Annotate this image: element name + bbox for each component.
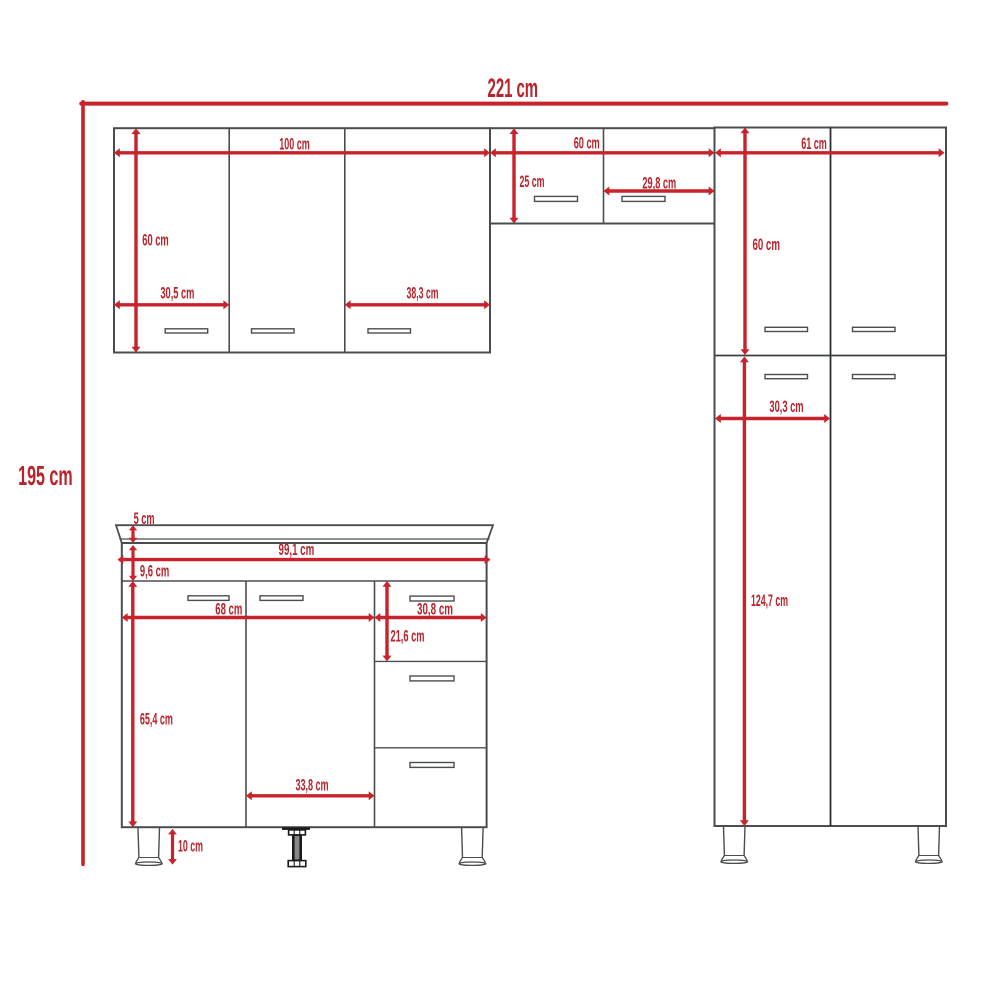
svg-text:68 cm: 68 cm (215, 600, 242, 618)
svg-text:195 cm: 195 cm (18, 460, 73, 491)
svg-text:221 cm: 221 cm (488, 73, 539, 103)
svg-text:30,8 cm: 30,8 cm (417, 600, 453, 618)
svg-text:60 cm: 60 cm (574, 135, 600, 153)
svg-text:25 cm: 25 cm (520, 173, 545, 191)
svg-text:30,3 cm: 30,3 cm (769, 398, 803, 416)
svg-text:5 cm: 5 cm (134, 510, 155, 528)
svg-text:99,1 cm: 99,1 cm (279, 541, 315, 559)
svg-text:10 cm: 10 cm (178, 838, 203, 856)
svg-text:9,6 cm: 9,6 cm (140, 562, 169, 580)
svg-text:100 cm: 100 cm (279, 136, 310, 154)
svg-text:30,5 cm: 30,5 cm (160, 285, 194, 303)
svg-text:60 cm: 60 cm (142, 232, 169, 250)
svg-text:38,3 cm: 38,3 cm (407, 285, 439, 303)
svg-text:124,7 cm: 124,7 cm (751, 592, 788, 610)
svg-text:29,8 cm: 29,8 cm (642, 175, 676, 193)
svg-text:33,8 cm: 33,8 cm (295, 776, 328, 794)
svg-text:65,4 cm: 65,4 cm (140, 711, 173, 729)
svg-text:60 cm: 60 cm (752, 236, 780, 254)
svg-text:61 cm: 61 cm (801, 135, 827, 153)
svg-text:21,6 cm: 21,6 cm (391, 628, 425, 646)
